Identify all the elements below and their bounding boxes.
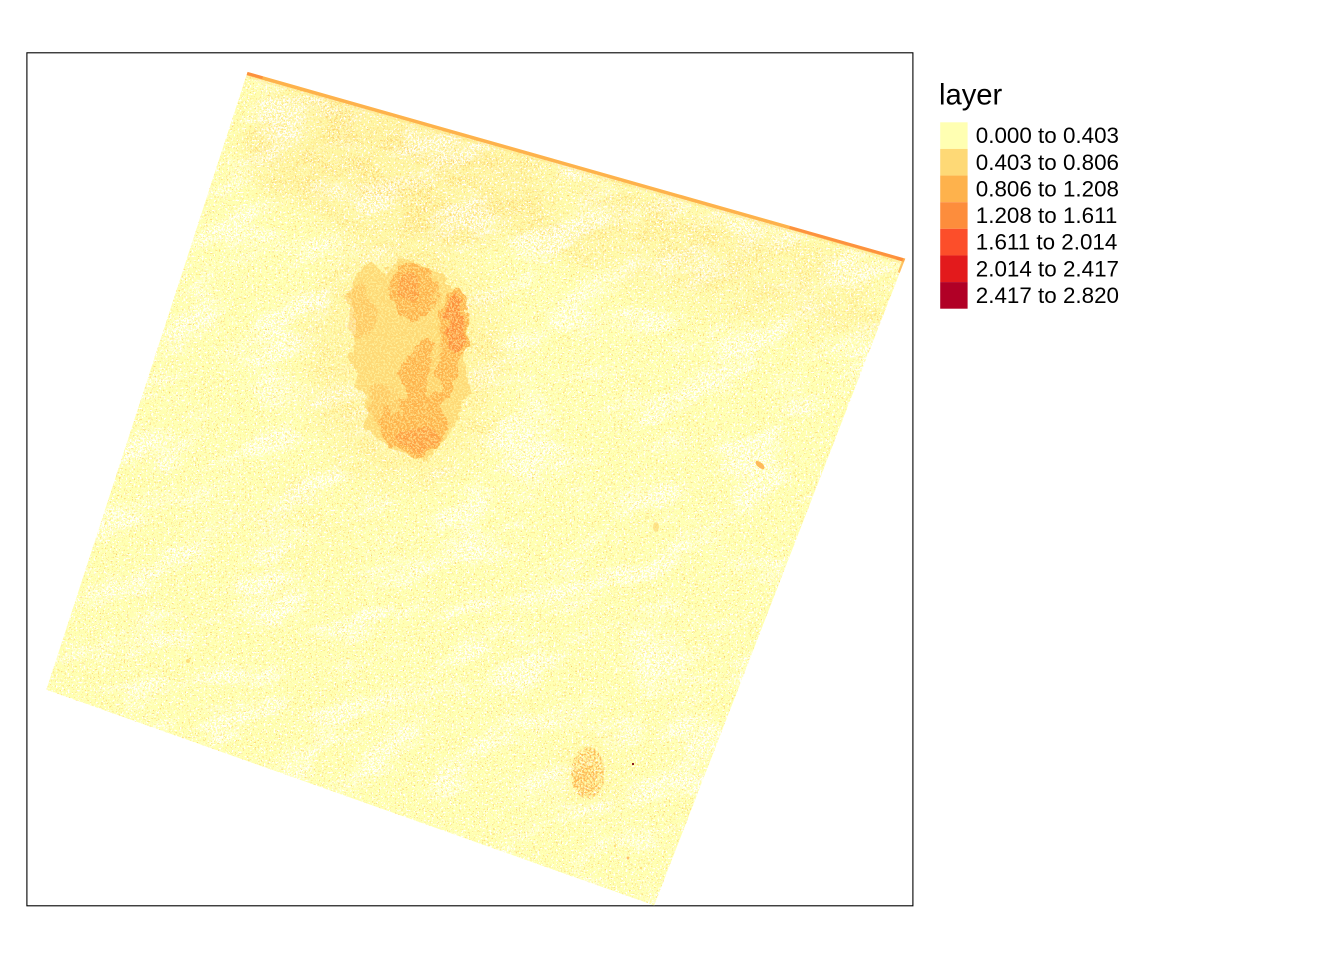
svg-text:2.014 to 2.417: 2.014 to 2.417	[976, 256, 1119, 281]
svg-text:0.806 to 1.208: 0.806 to 1.208	[976, 177, 1119, 202]
svg-text:1.208 to 1.611: 1.208 to 1.611	[976, 203, 1118, 228]
svg-text:layer: layer	[939, 80, 1003, 112]
svg-text:0.000 to 0.403: 0.000 to 0.403	[976, 123, 1119, 148]
svg-text:2.417 to 2.820: 2.417 to 2.820	[976, 283, 1119, 308]
svg-text:1.611 to 2.014: 1.611 to 2.014	[976, 230, 1118, 255]
svg-text:0.403 to 0.806: 0.403 to 0.806	[976, 150, 1119, 175]
